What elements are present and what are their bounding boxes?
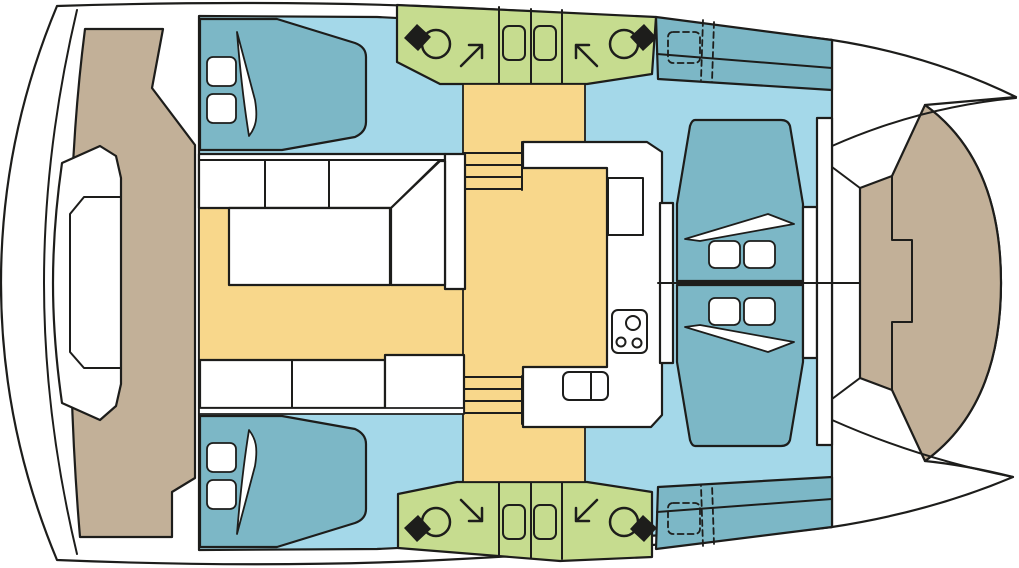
port-aft-berth [200, 19, 366, 150]
pillow [744, 241, 775, 268]
saloon-aft-seats [199, 355, 464, 414]
port-forepeak-berth [656, 17, 832, 90]
deck-plan-svg [0, 0, 1019, 568]
pillow [207, 94, 236, 123]
pillow [207, 57, 236, 86]
port-head [397, 5, 657, 84]
saloon-partition [445, 154, 465, 289]
pillow [207, 443, 236, 472]
pillow [207, 480, 236, 509]
starboard-aft-berth [200, 416, 366, 547]
pillow [709, 298, 740, 325]
pillow [744, 298, 775, 325]
starboard-head [398, 482, 657, 561]
fwd-cockpit-bulkhead [817, 118, 832, 445]
saloon-table [229, 208, 390, 285]
starboard-bow-lounger [677, 285, 803, 446]
port-bow-lounger [677, 120, 803, 281]
starboard-forepeak-berth [656, 477, 832, 549]
cockpit-bench [53, 146, 121, 420]
pillow [709, 241, 740, 268]
boat-floor-plan [0, 0, 1019, 568]
